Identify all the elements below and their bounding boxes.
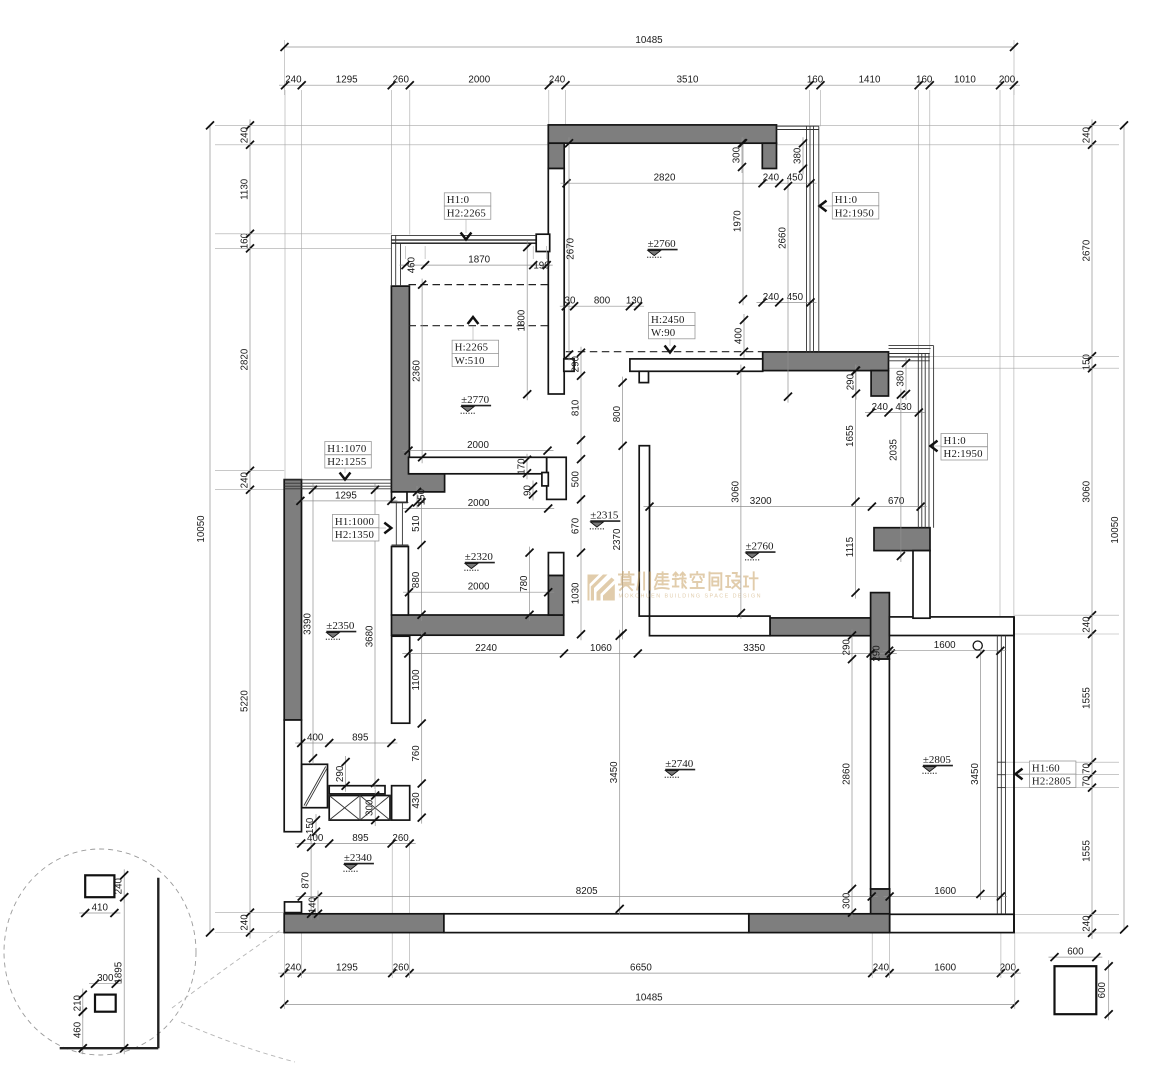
svg-text:400: 400 bbox=[307, 733, 324, 744]
svg-text:290: 290 bbox=[872, 645, 883, 662]
svg-text:160: 160 bbox=[916, 75, 933, 86]
svg-text:1030: 1030 bbox=[571, 582, 582, 604]
svg-text:670: 670 bbox=[571, 517, 582, 534]
svg-text:1295: 1295 bbox=[336, 75, 358, 86]
svg-text:760: 760 bbox=[411, 745, 422, 762]
svg-text:240: 240 bbox=[285, 963, 302, 974]
svg-text:1600: 1600 bbox=[934, 640, 956, 651]
svg-text:800: 800 bbox=[594, 296, 611, 307]
svg-text:H1:0: H1:0 bbox=[835, 194, 857, 206]
svg-text:2240: 2240 bbox=[475, 643, 497, 654]
svg-text:±2340: ±2340 bbox=[344, 852, 373, 864]
svg-text:870: 870 bbox=[301, 872, 312, 889]
svg-text:240: 240 bbox=[763, 173, 780, 184]
svg-text:90: 90 bbox=[523, 485, 534, 496]
svg-text:H1:1070: H1:1070 bbox=[327, 443, 366, 455]
svg-text:5220: 5220 bbox=[240, 690, 251, 712]
svg-text:W:510: W:510 bbox=[455, 355, 485, 367]
svg-text:510: 510 bbox=[411, 515, 422, 532]
svg-text:2660: 2660 bbox=[778, 227, 789, 249]
svg-text:1130: 1130 bbox=[240, 178, 251, 200]
svg-text:1115: 1115 bbox=[845, 536, 856, 557]
svg-text:240: 240 bbox=[549, 75, 566, 86]
svg-text:2820: 2820 bbox=[654, 173, 676, 184]
svg-text:2670: 2670 bbox=[1082, 239, 1093, 261]
svg-text:300: 300 bbox=[97, 973, 114, 984]
svg-text:3450: 3450 bbox=[970, 763, 981, 785]
svg-text:3680: 3680 bbox=[365, 625, 376, 647]
svg-text:150: 150 bbox=[417, 488, 428, 505]
svg-text:2370: 2370 bbox=[612, 528, 623, 550]
svg-text:H:2265: H:2265 bbox=[455, 342, 489, 354]
svg-text:430: 430 bbox=[411, 792, 422, 809]
svg-text:190: 190 bbox=[533, 261, 550, 272]
svg-text:290: 290 bbox=[335, 765, 346, 782]
svg-text:3060: 3060 bbox=[730, 480, 741, 502]
svg-text:H1:60: H1:60 bbox=[1032, 763, 1060, 775]
svg-text:1295: 1295 bbox=[335, 490, 357, 501]
svg-text:1060: 1060 bbox=[590, 643, 612, 654]
svg-text:300: 300 bbox=[732, 146, 743, 163]
svg-text:3390: 3390 bbox=[303, 613, 314, 635]
svg-text:240: 240 bbox=[240, 126, 251, 143]
svg-text:1010: 1010 bbox=[954, 75, 976, 86]
svg-text:600: 600 bbox=[1067, 947, 1084, 958]
svg-text:3200: 3200 bbox=[750, 496, 772, 507]
svg-text:2000: 2000 bbox=[468, 582, 490, 593]
svg-text:240: 240 bbox=[240, 471, 251, 488]
svg-text:880: 880 bbox=[411, 571, 422, 588]
svg-text:±2760: ±2760 bbox=[648, 238, 677, 250]
svg-text:400: 400 bbox=[734, 327, 745, 344]
svg-text:±2350: ±2350 bbox=[326, 620, 355, 632]
svg-text:210: 210 bbox=[72, 994, 83, 1011]
svg-text:290: 290 bbox=[846, 373, 857, 390]
svg-text:290: 290 bbox=[842, 639, 853, 656]
svg-text:10485: 10485 bbox=[635, 35, 663, 46]
svg-text:240: 240 bbox=[285, 75, 302, 86]
svg-text:1600: 1600 bbox=[934, 963, 956, 974]
svg-text:380: 380 bbox=[896, 370, 907, 387]
svg-text:200: 200 bbox=[999, 75, 1016, 86]
svg-text:10050: 10050 bbox=[196, 515, 207, 543]
svg-text:430: 430 bbox=[895, 402, 912, 413]
svg-text:70: 70 bbox=[1082, 775, 1093, 786]
svg-text:240: 240 bbox=[872, 402, 889, 413]
svg-text:2670: 2670 bbox=[566, 237, 577, 259]
svg-text:10485: 10485 bbox=[635, 993, 663, 1004]
svg-text:H2:2265: H2:2265 bbox=[447, 208, 486, 220]
svg-text:200: 200 bbox=[1000, 963, 1017, 974]
svg-text:H2:1950: H2:1950 bbox=[835, 207, 874, 219]
svg-text:1655: 1655 bbox=[845, 425, 856, 447]
svg-text:300: 300 bbox=[365, 799, 376, 816]
svg-text:160: 160 bbox=[807, 75, 824, 86]
svg-text:±2740: ±2740 bbox=[665, 758, 694, 770]
svg-text:410: 410 bbox=[92, 903, 109, 914]
svg-text:1870: 1870 bbox=[468, 255, 490, 266]
svg-text:150: 150 bbox=[305, 817, 316, 834]
svg-text:H2:2805: H2:2805 bbox=[1032, 776, 1071, 788]
svg-text:1555: 1555 bbox=[1082, 687, 1093, 709]
svg-text:2860: 2860 bbox=[842, 763, 853, 785]
svg-text:1800: 1800 bbox=[517, 309, 528, 331]
svg-text:810: 810 bbox=[571, 399, 582, 416]
svg-text:MOKCHUEN BUILDING SPACE DESIGN: MOKCHUEN BUILDING SPACE DESIGN bbox=[619, 594, 762, 600]
svg-text:±2805: ±2805 bbox=[923, 754, 952, 766]
svg-text:±2760: ±2760 bbox=[746, 541, 775, 553]
svg-text:W:90: W:90 bbox=[651, 327, 675, 339]
svg-text:10050: 10050 bbox=[1110, 516, 1121, 544]
svg-text:500: 500 bbox=[571, 470, 582, 487]
svg-text:2035: 2035 bbox=[888, 439, 899, 461]
svg-text:160: 160 bbox=[240, 232, 251, 249]
svg-text:130: 130 bbox=[626, 296, 643, 307]
svg-text:450: 450 bbox=[787, 292, 804, 303]
svg-text:380: 380 bbox=[793, 147, 804, 164]
svg-text:H2:1950: H2:1950 bbox=[944, 448, 983, 460]
svg-text:240: 240 bbox=[240, 914, 251, 931]
svg-text:240: 240 bbox=[763, 292, 780, 303]
svg-text:1410: 1410 bbox=[859, 75, 881, 86]
svg-text:2000: 2000 bbox=[467, 440, 489, 451]
svg-text:3350: 3350 bbox=[743, 643, 765, 654]
svg-text:240: 240 bbox=[1082, 915, 1093, 932]
svg-text:2000: 2000 bbox=[468, 498, 490, 509]
svg-text:H1:1000: H1:1000 bbox=[335, 516, 374, 528]
svg-text:±2770: ±2770 bbox=[461, 394, 490, 406]
svg-text:240: 240 bbox=[1082, 126, 1093, 143]
svg-text:H1:0: H1:0 bbox=[447, 194, 469, 206]
svg-text:800: 800 bbox=[612, 405, 623, 422]
svg-text:290: 290 bbox=[571, 355, 582, 372]
svg-text:8205: 8205 bbox=[576, 886, 598, 897]
svg-text:780: 780 bbox=[519, 575, 530, 592]
svg-text:895: 895 bbox=[352, 733, 369, 744]
svg-text:240: 240 bbox=[873, 963, 890, 974]
svg-text:2000: 2000 bbox=[468, 75, 490, 86]
svg-text:70: 70 bbox=[1082, 763, 1093, 774]
svg-text:3510: 3510 bbox=[677, 75, 699, 86]
svg-text:260: 260 bbox=[393, 75, 410, 86]
svg-text:300: 300 bbox=[842, 892, 853, 909]
svg-text:240: 240 bbox=[1082, 616, 1093, 633]
svg-text:670: 670 bbox=[888, 496, 905, 507]
svg-text:H1:0: H1:0 bbox=[944, 435, 966, 447]
svg-text:460: 460 bbox=[406, 256, 417, 273]
svg-text:2820: 2820 bbox=[240, 348, 251, 370]
svg-text:140: 140 bbox=[308, 896, 319, 913]
svg-text:3060: 3060 bbox=[1082, 480, 1093, 502]
svg-text:260: 260 bbox=[392, 833, 409, 844]
svg-text:30: 30 bbox=[565, 296, 576, 307]
svg-text:2360: 2360 bbox=[412, 360, 423, 382]
svg-text:895: 895 bbox=[352, 833, 369, 844]
svg-text:1600: 1600 bbox=[934, 886, 956, 897]
svg-text:600: 600 bbox=[1097, 981, 1108, 998]
svg-text:1555: 1555 bbox=[1082, 840, 1093, 862]
svg-text:±2320: ±2320 bbox=[465, 551, 494, 563]
svg-text:1100: 1100 bbox=[411, 669, 422, 691]
svg-text:240: 240 bbox=[114, 877, 125, 894]
svg-text:170: 170 bbox=[517, 458, 528, 475]
svg-text:460: 460 bbox=[72, 1021, 83, 1038]
svg-text:6650: 6650 bbox=[630, 963, 652, 974]
svg-text:3450: 3450 bbox=[609, 761, 620, 783]
svg-text:450: 450 bbox=[787, 173, 804, 184]
svg-text:H:2450: H:2450 bbox=[651, 314, 685, 326]
svg-text:±2315: ±2315 bbox=[590, 510, 619, 522]
svg-text:H2:1350: H2:1350 bbox=[335, 529, 374, 541]
svg-text:260: 260 bbox=[393, 963, 410, 974]
svg-text:H2:1255: H2:1255 bbox=[327, 456, 366, 468]
svg-text:1295: 1295 bbox=[336, 963, 358, 974]
svg-text:1970: 1970 bbox=[733, 210, 744, 232]
